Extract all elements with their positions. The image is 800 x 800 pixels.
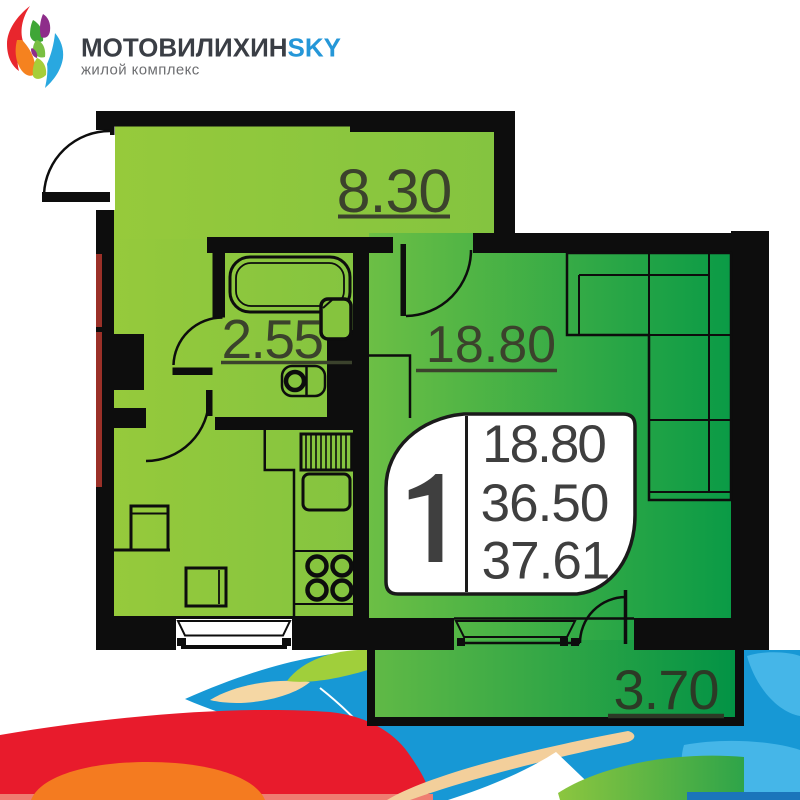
svg-text:18.80: 18.80 [482,415,605,474]
svg-text:3.70: 3.70 [614,658,719,721]
svg-text:37.61: 37.61 [482,532,610,591]
svg-text:36.50: 36.50 [481,474,609,533]
svg-text:жилой комплекс: жилой комплекс [81,62,200,79]
svg-text:18.80: 18.80 [426,316,556,374]
svg-text:2.55: 2.55 [221,308,322,370]
svg-text:МОТОВИЛИХИНSKY: МОТОВИЛИХИНSKY [81,33,341,63]
